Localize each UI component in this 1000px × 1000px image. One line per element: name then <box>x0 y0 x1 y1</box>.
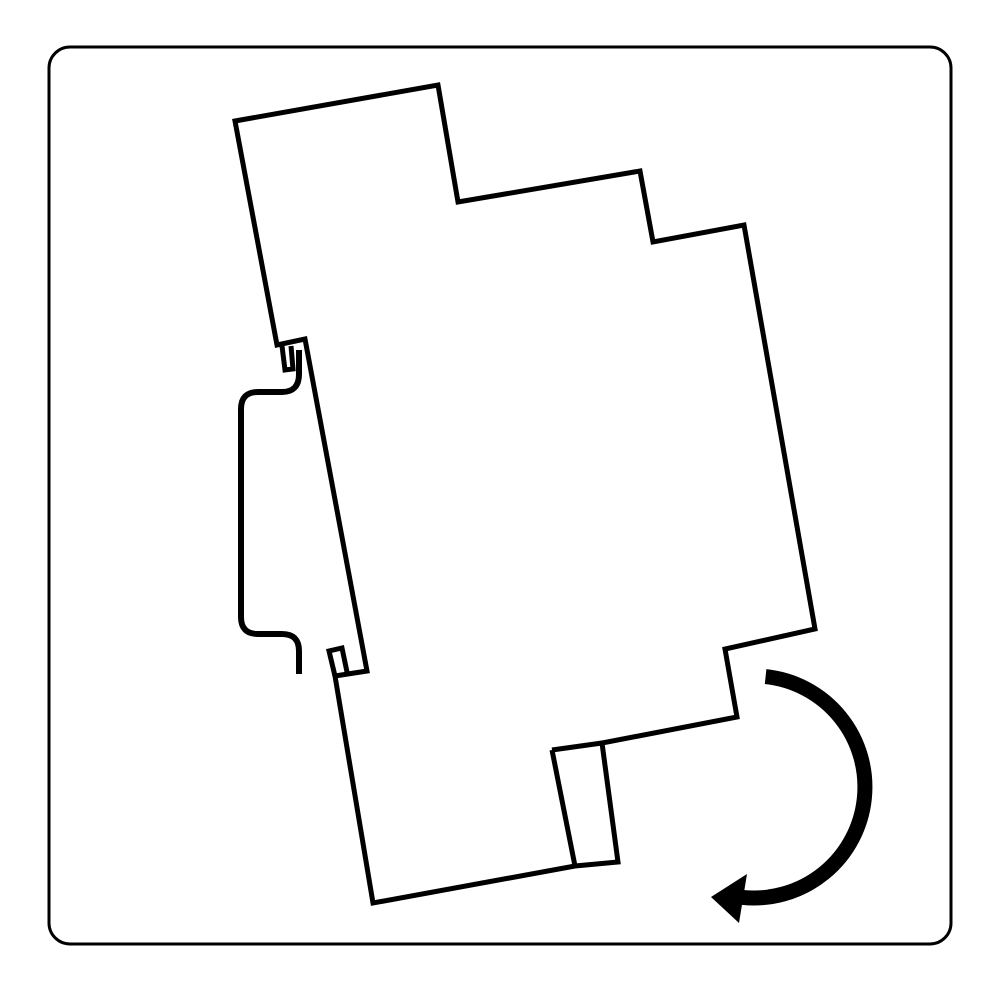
frame-border <box>49 47 951 944</box>
page-background <box>0 0 1000 1000</box>
din-rail-mounting-diagram <box>0 0 1000 1000</box>
